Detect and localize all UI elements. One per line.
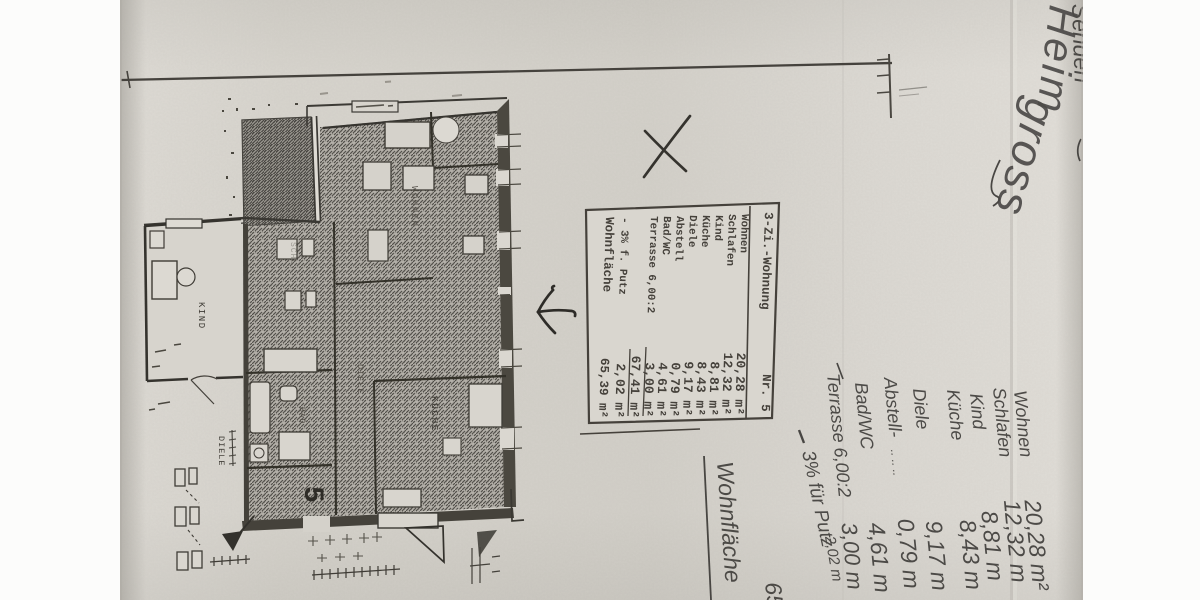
svg-text:Nr. 5: Nr. 5 xyxy=(758,374,773,412)
svg-text:SCHL.: SCHL. xyxy=(288,242,297,271)
svg-text:Bad/WC: Bad/WC xyxy=(659,216,672,256)
svg-text:DIELE: DIELE xyxy=(355,364,365,395)
svg-text:KÜCHE: KÜCHE xyxy=(429,396,440,432)
svg-text:Diele: Diele xyxy=(909,387,933,430)
svg-text:.. .. ..: .. .. .. xyxy=(888,449,904,477)
svg-text:KIND: KIND xyxy=(196,302,206,330)
svg-text:Kind: Kind xyxy=(966,392,989,431)
svg-text:Wohnen: Wohnen xyxy=(737,214,750,253)
svg-text:Diele: Diele xyxy=(685,215,698,248)
svg-text:BAD: BAD xyxy=(297,407,306,424)
svg-text:5: 5 xyxy=(296,486,327,503)
svg-text:Schlafen: Schlafen xyxy=(723,214,737,266)
svg-text:65,39 m²: 65,39 m² xyxy=(595,358,611,418)
svg-text:2,02 m²: 2,02 m² xyxy=(611,363,628,418)
svg-text:DIELE: DIELE xyxy=(216,436,226,467)
svg-text:WOHNEN: WOHNEN xyxy=(409,186,419,227)
svg-text:Küche: Küche xyxy=(698,215,711,248)
svg-text:65: 65 xyxy=(760,581,789,600)
svg-text:Abstell: Abstell xyxy=(671,216,685,262)
svg-text:Kind: Kind xyxy=(711,215,724,241)
svg-text:Wohnfläche: Wohnfläche xyxy=(599,217,616,292)
